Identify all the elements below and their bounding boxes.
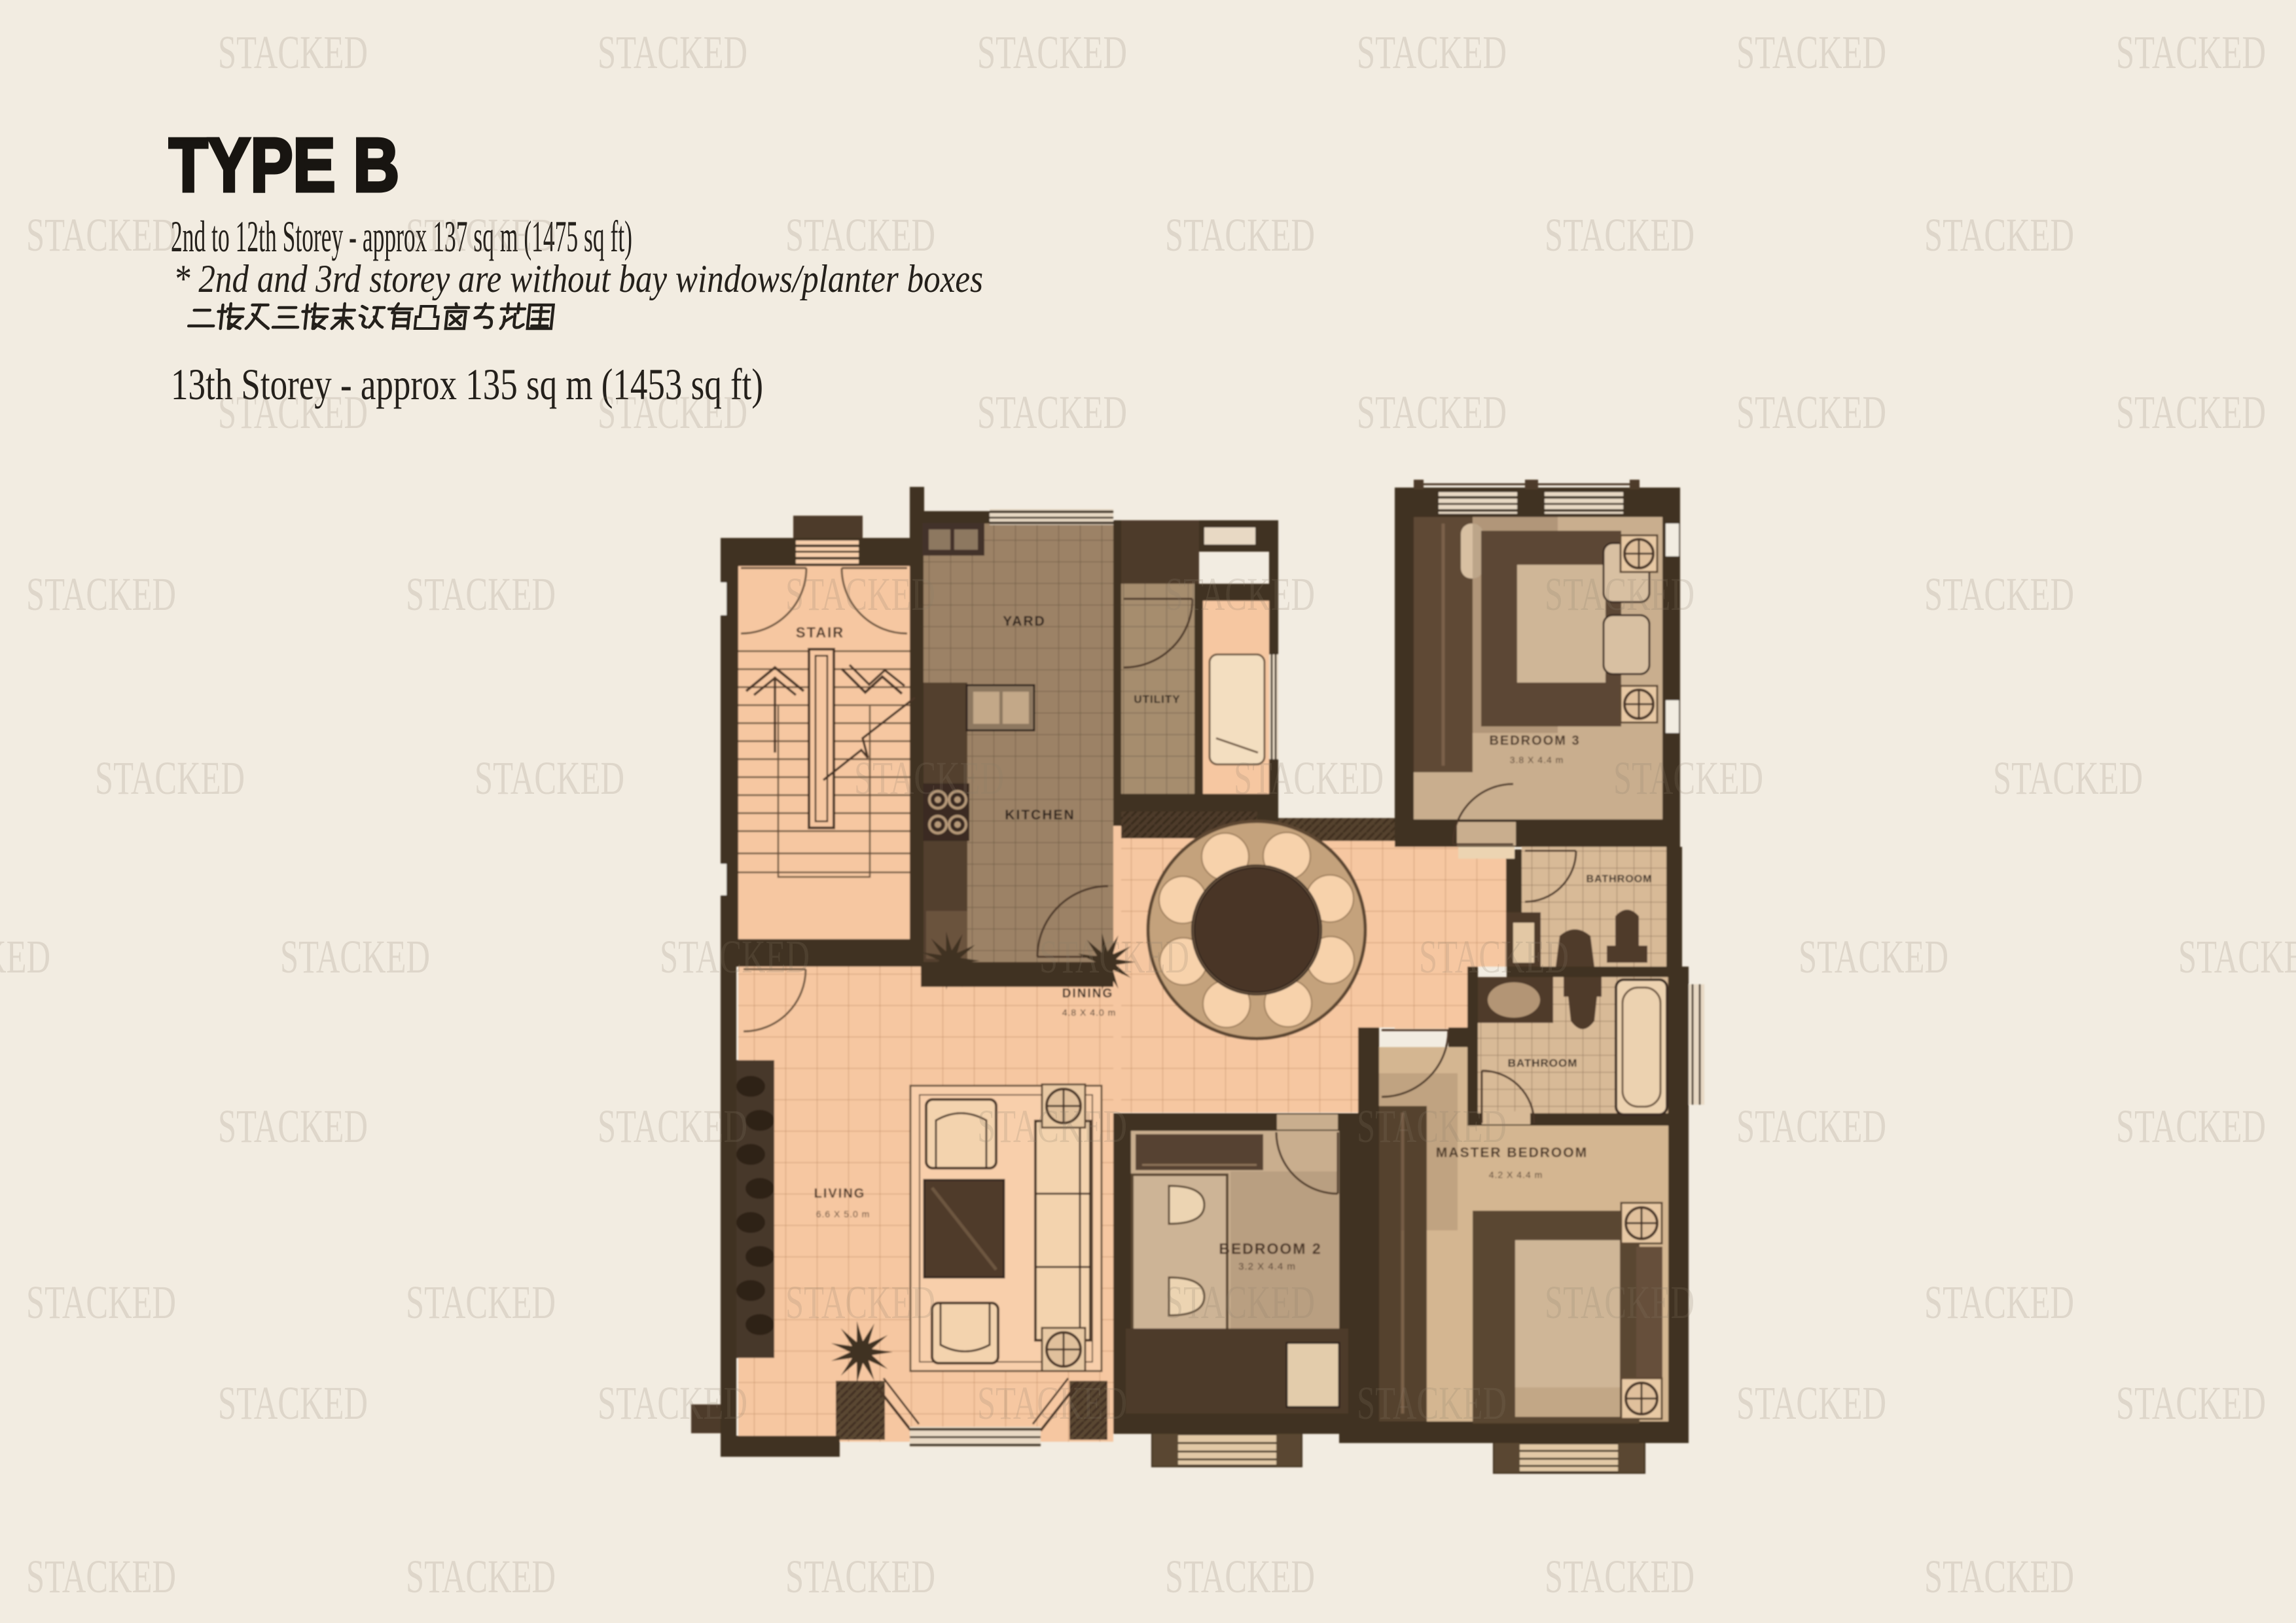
svg-text:STACKED: STACKED (1165, 1276, 1315, 1329)
svg-text:STACKED: STACKED (1419, 931, 1569, 983)
svg-text:LIVING: LIVING (814, 1186, 866, 1201)
svg-text:STACKED: STACKED (1357, 26, 1507, 79)
svg-text:STACKED: STACKED (977, 1377, 1127, 1429)
svg-text:STACKED: STACKED (0, 931, 50, 983)
svg-text:STACKED: STACKED (785, 568, 935, 620)
svg-text:STACKED: STACKED (1993, 752, 2143, 804)
svg-text:STACKED: STACKED (26, 568, 176, 620)
svg-text:STACKED: STACKED (1924, 568, 2074, 620)
svg-text:STACKED: STACKED (977, 1100, 1127, 1152)
svg-text:STACKED: STACKED (1924, 209, 2074, 261)
svg-text:STACKED: STACKED (598, 386, 747, 438)
svg-text:STAIR: STAIR (796, 624, 844, 641)
svg-text:STACKED: STACKED (26, 1276, 176, 1329)
svg-text:6.6 X 5.0 m: 6.6 X 5.0 m (816, 1209, 870, 1219)
svg-text:STACKED: STACKED (1545, 568, 1695, 620)
svg-text:* 2nd and 3rd storey are witho: * 2nd and 3rd storey are without bay win… (173, 257, 983, 300)
svg-text:STACKED: STACKED (660, 931, 810, 983)
svg-text:STACKED: STACKED (218, 1100, 368, 1152)
svg-text:STACKED: STACKED (1799, 931, 1948, 983)
svg-text:STACKED: STACKED (218, 26, 368, 79)
svg-text:STACKED: STACKED (1924, 1276, 2074, 1329)
svg-text:DINING: DINING (1062, 987, 1114, 1001)
svg-text:STACKED: STACKED (1039, 931, 1189, 983)
svg-text:STACKED: STACKED (598, 26, 747, 79)
svg-text:STACKED: STACKED (785, 1550, 935, 1603)
svg-text:STACKED: STACKED (977, 26, 1127, 79)
svg-text:STACKED: STACKED (2116, 1100, 2266, 1152)
svg-text:YARD: YARD (1003, 614, 1046, 629)
svg-text:STACKED: STACKED (2116, 386, 2266, 438)
svg-text:STACKED: STACKED (406, 1550, 556, 1603)
svg-text:STACKED: STACKED (406, 568, 556, 620)
svg-text:STACKED: STACKED (406, 1276, 556, 1329)
svg-text:3.2 X 4.4 m: 3.2 X 4.4 m (1238, 1261, 1296, 1272)
svg-text:KITCHEN: KITCHEN (1005, 808, 1075, 823)
svg-text:STACKED: STACKED (26, 209, 176, 261)
svg-text:STACKED: STACKED (1545, 1550, 1695, 1603)
svg-text:STACKED: STACKED (1165, 568, 1315, 620)
svg-text:STACKED: STACKED (1165, 1550, 1315, 1603)
svg-text:STACKED: STACKED (1545, 1276, 1695, 1329)
svg-text:BATHROOM: BATHROOM (1586, 874, 1652, 885)
svg-text:BEDROOM 3: BEDROOM 3 (1489, 734, 1580, 748)
svg-text:4.2 X 4.4 m: 4.2 X 4.4 m (1489, 1169, 1543, 1180)
svg-text:STACKED: STACKED (1736, 1377, 1886, 1429)
svg-text:STACKED: STACKED (1357, 1377, 1507, 1429)
svg-text:STACKED: STACKED (1357, 1100, 1507, 1152)
svg-text:TYPE B: TYPE B (169, 122, 399, 207)
svg-text:BATHROOM: BATHROOM (1508, 1057, 1578, 1069)
svg-text:STACKED: STACKED (1736, 26, 1886, 79)
svg-text:STACKED: STACKED (854, 752, 1004, 804)
svg-text:STACKED: STACKED (26, 1550, 176, 1603)
svg-text:BEDROOM 2: BEDROOM 2 (1219, 1240, 1321, 1257)
svg-text:STACKED: STACKED (785, 209, 935, 261)
svg-text:STACKED: STACKED (2116, 26, 2266, 79)
svg-text:STACKED: STACKED (280, 931, 430, 983)
svg-text:STACKED: STACKED (598, 1377, 747, 1429)
svg-text:STACKED: STACKED (1924, 1550, 2074, 1603)
svg-text:STACKED: STACKED (785, 1276, 935, 1329)
svg-text:STACKED: STACKED (977, 386, 1127, 438)
svg-text:STACKED: STACKED (1165, 209, 1315, 261)
svg-text:STACKED: STACKED (598, 1100, 747, 1152)
svg-text:STACKED: STACKED (1357, 386, 1507, 438)
svg-text:STACKED: STACKED (406, 209, 556, 261)
svg-text:STACKED: STACKED (1736, 1100, 1886, 1152)
svg-text:UTILITY: UTILITY (1134, 693, 1180, 705)
svg-text:STACKED: STACKED (218, 1377, 368, 1429)
svg-text:STACKED: STACKED (2178, 931, 2296, 983)
svg-text:STACKED: STACKED (2116, 1377, 2266, 1429)
svg-text:2nd to 12th Storey - approx 13: 2nd to 12th Storey - approx 137 sq m (14… (171, 211, 632, 261)
svg-text:3.8 X 4.4 m: 3.8 X 4.4 m (1510, 755, 1564, 765)
svg-text:4.8 X 4.0 m: 4.8 X 4.0 m (1062, 1007, 1117, 1018)
svg-text:STACKED: STACKED (95, 752, 245, 804)
svg-text:STACKED: STACKED (1234, 752, 1384, 804)
svg-text:STACKED: STACKED (1613, 752, 1763, 804)
svg-text:STACKED: STACKED (218, 386, 368, 438)
svg-text:STACKED: STACKED (1736, 386, 1886, 438)
svg-text:STACKED: STACKED (1545, 209, 1695, 261)
svg-text:STACKED: STACKED (475, 752, 624, 804)
